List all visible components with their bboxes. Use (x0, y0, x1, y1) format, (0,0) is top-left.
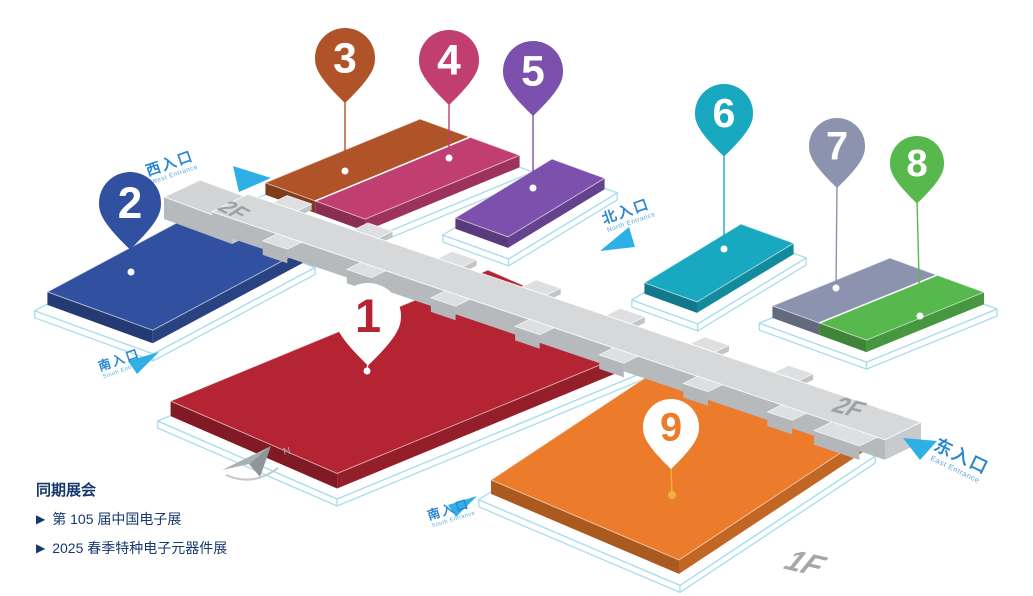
legend-item: ▶ 第 105 届中国电子展 (36, 509, 227, 529)
legend-item: ▶ 2025 春季特种电子元器件展 (36, 538, 227, 558)
pin-number-2: 2 (118, 179, 142, 228)
pin-dot-4 (446, 155, 453, 162)
pin-dot-8 (917, 313, 924, 320)
pin-number-7: 7 (826, 124, 848, 168)
pin-line-9 (671, 465, 672, 495)
pin-number-6: 6 (713, 90, 736, 136)
pin-number-1: 1 (355, 290, 381, 342)
floor-label-1f: 1F (776, 544, 834, 581)
pin-dot-5 (530, 185, 537, 192)
legend-title: 同期展会 (36, 479, 227, 500)
triangle-bullet-icon: ▶ (36, 541, 45, 555)
west-entrance-arrow-icon (233, 166, 271, 192)
triangle-bullet-icon: ▶ (36, 512, 45, 526)
pin-line-2 (130, 246, 131, 273)
pin-dot-3 (342, 168, 349, 175)
east-entrance-label: 东入口 East Entrance (927, 435, 992, 487)
pin-dot-2 (128, 269, 135, 276)
pin-number-8: 8 (906, 142, 927, 185)
pin-number-9: 9 (660, 405, 682, 449)
pin-dot-9 (668, 491, 676, 499)
pin-number-3: 3 (333, 34, 357, 82)
pin-number-5: 5 (521, 47, 545, 95)
venue-map-page: 西入口 West Entrance 北入口 North Entrance 东入口… (0, 0, 1033, 596)
pin-dot-1 (364, 368, 371, 375)
pin-number-4: 4 (437, 36, 461, 84)
concurrent-shows-legend: 同期展会 ▶ 第 105 届中国电子展 ▶ 2025 春季特种电子元器件展 (36, 479, 227, 567)
pin-line-7 (836, 184, 837, 288)
pin-dot-7 (833, 285, 840, 292)
south-entrance-center-label: 南入口 South Entrance (425, 495, 475, 529)
legend-item-label: 第 105 届中国电子展 (52, 509, 181, 529)
legend-item-label: 2025 春季特种电子元器件展 (52, 538, 227, 558)
west-entrance-label: 西入口 West Entrance (144, 147, 199, 186)
pin-dot-6 (721, 246, 728, 253)
